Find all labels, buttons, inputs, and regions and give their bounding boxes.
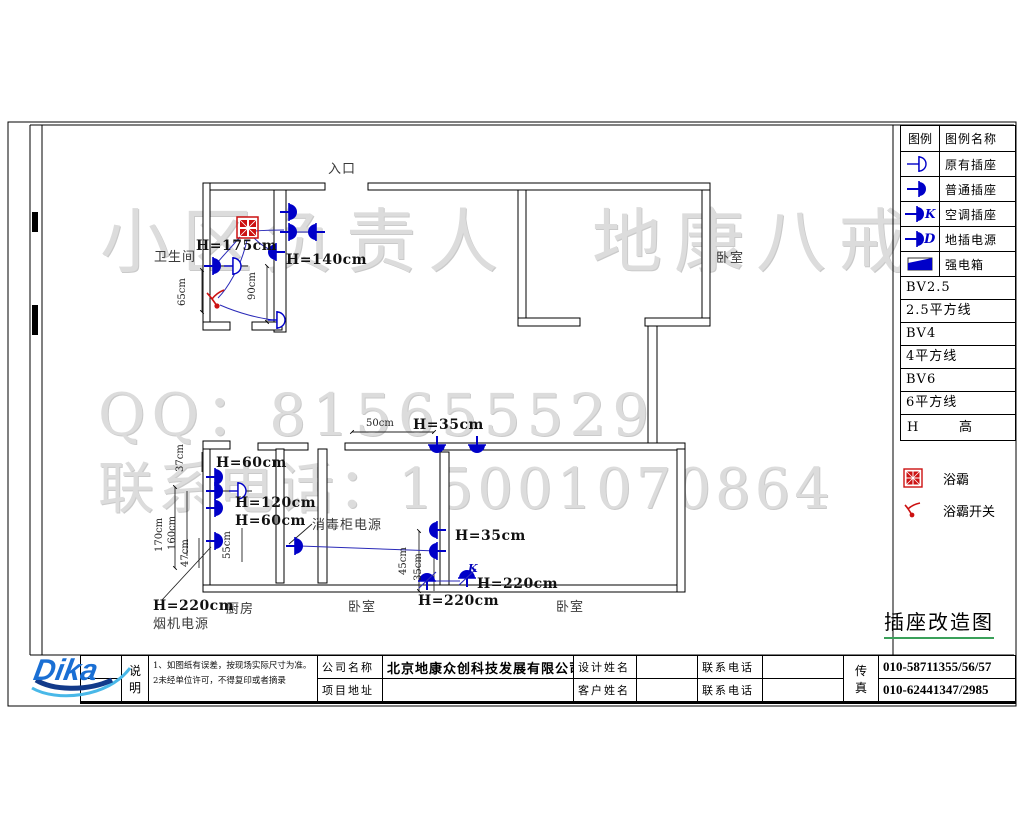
ac-socket-icon (458, 570, 476, 587)
legend-label: 普通插座 (940, 181, 1015, 198)
fax-number-1: 010-58711355/56/57 (879, 656, 1015, 679)
bath-heater-icon (903, 468, 927, 488)
bath-heater-icon (237, 217, 258, 238)
power-distribution-box-icon (901, 252, 940, 276)
wire-spec: 2.5平方线 (901, 300, 1015, 323)
company-logo: Dika (26, 650, 136, 702)
drawing-title: 插座改造图 (884, 606, 994, 639)
title-block: 说 明 1、如图纸有误差，按现场实际尺寸为准。 2未经单位许可，不得复印或者摘录… (80, 655, 1016, 704)
customer-label: 客户姓名 (574, 679, 636, 701)
ac-socket-icon: K (901, 202, 940, 226)
existing-socket-icon (901, 152, 940, 176)
designer-value (637, 656, 697, 679)
notes-text: 1、如图纸有误差，按现场实际尺寸为准。 2未经单位许可，不得复印或者摘录 (149, 656, 317, 701)
walls (203, 183, 710, 592)
svg-text:K: K (924, 207, 936, 221)
legend-header-name: 图例名称 (940, 130, 1015, 147)
extra-legend: 浴霸 浴霸开关 (903, 468, 995, 532)
legend-label: 强电箱 (940, 256, 1015, 273)
logo-text: Dika (31, 654, 100, 688)
phone-label-2: 联系电话 (698, 679, 762, 701)
phone-label-1: 联系电话 (698, 656, 762, 679)
normal-socket-icon (901, 177, 940, 201)
fax-number-2: 010-62441347/2985 (879, 679, 1015, 701)
company-label: 公司名称 (318, 656, 382, 679)
floor-socket-power-icon: D (901, 227, 940, 251)
frame-marks (32, 212, 38, 335)
extra-legend-label: 浴霸开关 (943, 501, 995, 520)
address-value (383, 679, 573, 701)
normal-socket-icon (308, 223, 325, 241)
h-label: 高 (959, 415, 972, 440)
designer-label: 设计姓名 (574, 656, 636, 679)
fax-label: 传 真 (844, 656, 878, 701)
legend-table: 图例 图例名称 原有插座 普通插座 K 空调插座 D 地插电源 强电箱 BV2.… (900, 125, 1016, 441)
svg-text:D: D (923, 232, 936, 247)
legend-label: 地插电源 (940, 231, 1015, 248)
legend-header-symbol: 图例 (901, 126, 940, 151)
existing-socket-icon (224, 257, 241, 275)
normal-socket-icon (286, 537, 303, 555)
legend-label: 原有插座 (940, 156, 1015, 173)
wire-spec: BV6 (901, 369, 1015, 392)
circuit-wires (218, 230, 460, 581)
customer-value (637, 679, 697, 701)
wire-spec: BV4 (901, 323, 1015, 346)
address-label: 项目地址 (318, 679, 382, 701)
phone-value-1 (763, 656, 843, 679)
cad-sheet: { "watermarks": { "line1": "小区负责人 地康八戒",… (0, 0, 1024, 819)
extra-legend-label: 浴霸 (943, 469, 969, 488)
legend-label: 空调插座 (940, 206, 1015, 223)
sheet-frame (8, 122, 1016, 706)
existing-socket-icon (229, 482, 246, 500)
wire-spec: 4平方线 (901, 346, 1015, 369)
bath-heater-switch-icon (903, 500, 927, 520)
wire-spec: 6平方线 (901, 392, 1015, 415)
height-symbol-row: H 高 (901, 415, 1015, 440)
company-value: 北京地康众创科技发展有限公司 (383, 656, 573, 679)
phone-value-2 (763, 679, 843, 701)
h-symbol: H (901, 415, 959, 440)
wire-spec: BV2.5 (901, 277, 1015, 300)
